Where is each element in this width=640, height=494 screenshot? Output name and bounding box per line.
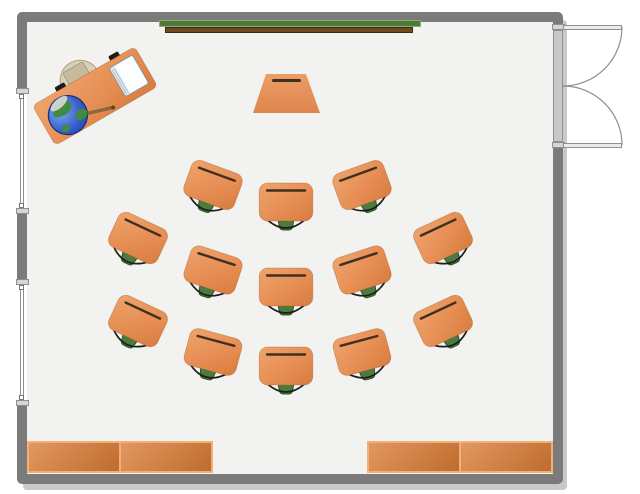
student-desk[interactable] bbox=[256, 266, 316, 330]
student-desk[interactable] bbox=[256, 181, 316, 245]
window[interactable] bbox=[16, 88, 29, 214]
student-desk[interactable] bbox=[256, 345, 316, 409]
door-leaf-top bbox=[563, 25, 622, 30]
window-glass bbox=[20, 94, 24, 208]
window-glass bbox=[20, 285, 24, 400]
lectern-groove bbox=[272, 79, 301, 82]
window-handle-icon bbox=[19, 395, 24, 400]
window[interactable] bbox=[16, 279, 29, 406]
chalkboard-tray bbox=[165, 27, 413, 33]
window-handle-icon bbox=[19, 285, 24, 290]
chalkboard[interactable] bbox=[159, 20, 421, 27]
teacher-desk-top bbox=[32, 47, 157, 146]
door-threshold bbox=[553, 30, 563, 142]
desk-top bbox=[259, 347, 313, 385]
desk-top bbox=[259, 183, 313, 221]
window-handle-icon bbox=[19, 203, 24, 208]
desk-top bbox=[259, 268, 313, 306]
bookcase-shelf bbox=[29, 443, 119, 471]
bookcase[interactable] bbox=[367, 441, 553, 473]
door[interactable] bbox=[552, 24, 634, 148]
bookcase-shelf bbox=[461, 443, 551, 471]
floor-plan-canvas bbox=[0, 0, 640, 494]
bookcase-shelf bbox=[369, 443, 459, 471]
door-leaf-bottom bbox=[563, 143, 622, 148]
window-jamb-bottom bbox=[16, 400, 29, 406]
window-jamb-bottom bbox=[16, 208, 29, 214]
bookcase[interactable] bbox=[27, 441, 213, 473]
window-handle-icon bbox=[19, 94, 24, 99]
bookcase-shelf bbox=[121, 443, 211, 471]
